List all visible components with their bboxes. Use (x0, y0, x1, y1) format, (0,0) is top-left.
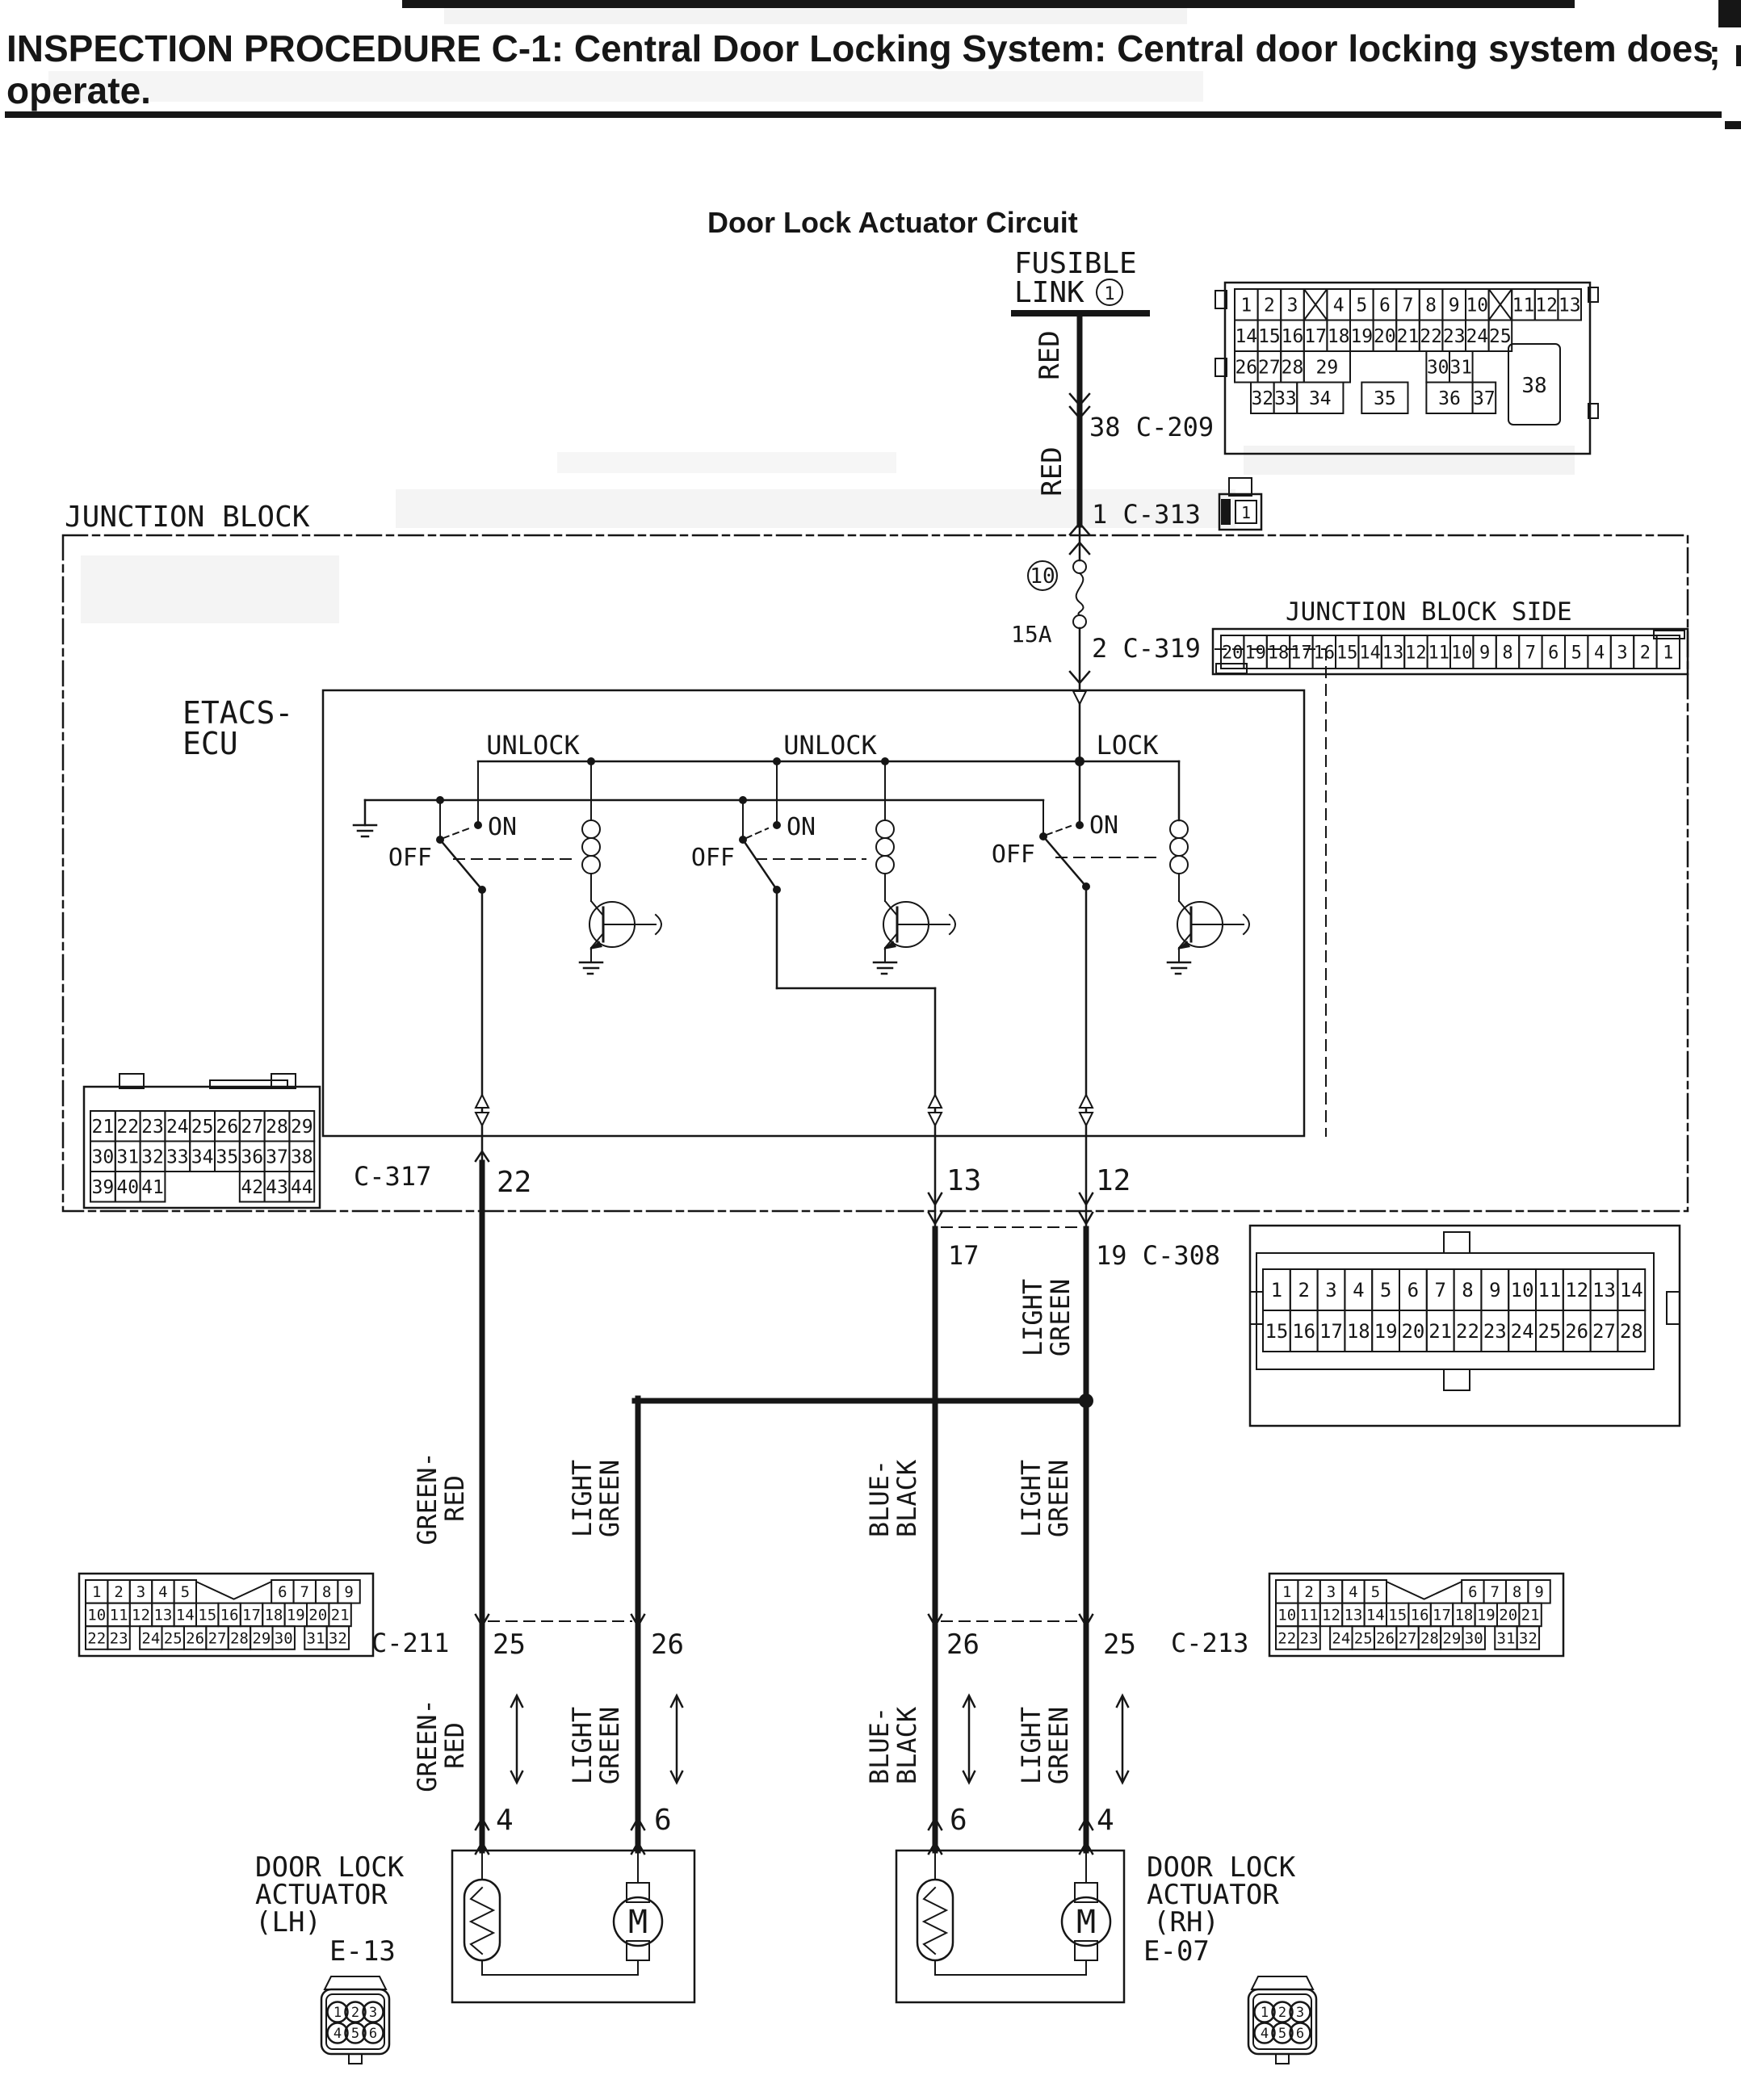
switch-blade (743, 840, 777, 890)
wire-color-light-green: LIGHT GREEN (567, 1460, 625, 1537)
wire-color-label: LIGHT (1016, 1460, 1047, 1537)
junction-dot (436, 796, 444, 804)
pin-number: 16 (1282, 326, 1304, 347)
pin-number: 11 (1512, 296, 1535, 316)
pin-number: 12 (1405, 643, 1427, 663)
pin-number: 25 (164, 1629, 182, 1647)
pin-number: 13 (1382, 643, 1404, 663)
entry-triangle-icon (1073, 691, 1086, 704)
pin-number: 32 (1519, 1629, 1538, 1647)
pin-number: 33 (1274, 388, 1297, 409)
exit-triangles (476, 1095, 1093, 1125)
relay-coil-transistor-3 (1168, 761, 1249, 974)
pin-number: 19 (1244, 643, 1266, 663)
pin-number: 19 (1350, 326, 1373, 347)
blade-dashed (443, 828, 469, 838)
wire-color-label: BLUE- (864, 1707, 895, 1784)
connector-notch (196, 1582, 271, 1599)
c211-connector: 1234567891011121314151617181920212223242… (79, 1574, 373, 1656)
pin-number: 32 (329, 1629, 347, 1647)
blade-dashed (1047, 826, 1071, 835)
pin-number: 21 (331, 1607, 350, 1624)
pin-number: 8 (1425, 296, 1437, 316)
junction-dot (739, 796, 747, 804)
pin-number: 3 (369, 2005, 377, 2021)
etacs-label-line2: ECU (182, 726, 238, 761)
pin-number: 29 (1316, 358, 1339, 379)
pin-number: 10 (87, 1607, 106, 1624)
wire-color-label: BLACK (891, 1459, 922, 1537)
pin-number: 19 (1477, 1607, 1496, 1624)
pin-number: 27 (241, 1117, 263, 1138)
pin-number: 5 (1380, 1279, 1391, 1301)
base-hook (950, 915, 955, 934)
wire-color-label: RED (1034, 330, 1066, 379)
pin-number: 37 (1473, 388, 1496, 409)
on-contact (474, 821, 482, 829)
relay-switch-unlock-2: ON OFF (691, 757, 866, 894)
pin-number: 6 (1468, 1583, 1477, 1601)
pin-number: 17 (1319, 1320, 1343, 1343)
e07-round-connector: 123456 (1248, 1976, 1316, 2064)
pin-number: 8 (322, 1583, 331, 1601)
wire-color-label: RED (439, 1475, 470, 1522)
exit-triangle-icon (1080, 1113, 1093, 1125)
wire-color-label: GREEN (1045, 1279, 1076, 1356)
on-label: ON (1089, 811, 1118, 840)
pin-number: 18 (1268, 643, 1290, 663)
pin-number: 27 (1399, 1629, 1417, 1647)
actuator-pin-4-right: 4 (1097, 1804, 1114, 1837)
pin-number: 40 (116, 1177, 139, 1198)
pin-number: 5 (1371, 1583, 1380, 1601)
relay-switch-lock: ON OFF (992, 757, 1160, 891)
pin-number: 9 (344, 1583, 353, 1601)
pin-number: 15 (1336, 643, 1358, 663)
pin-number: 23 (141, 1117, 164, 1138)
pin-number: 36 (241, 1147, 263, 1168)
on-contact (1076, 821, 1084, 829)
pin-number: 5 (351, 2026, 359, 2042)
pin-number: 17 (1304, 326, 1327, 347)
page-edge-mark (1736, 45, 1741, 66)
c317-connector: 2122232425262728293031323334353637383940… (84, 1074, 320, 1208)
pin-number: 2 (1298, 1279, 1309, 1301)
pin-number: 22 (1456, 1320, 1479, 1343)
pin-number: 27 (1258, 358, 1281, 379)
junction-block-box (63, 535, 1688, 1211)
wire-color-label: LIGHT (1017, 1279, 1048, 1356)
pin-number: 32 (141, 1147, 164, 1168)
pin-number: 1 (334, 2005, 342, 2021)
exit-triangle-icon (1080, 1095, 1093, 1108)
pin-number: 10 (1277, 1607, 1296, 1624)
wire-color-light-green-2-lower: LIGHT GREEN (1016, 1707, 1074, 1784)
pin-number: 28 (1420, 1629, 1439, 1647)
actuator-pin-6-right: 6 (950, 1804, 967, 1837)
e07-housing-top (1252, 1976, 1313, 1989)
pin-number: 6 (1407, 1279, 1419, 1301)
wire-color-label: BLACK (891, 1706, 922, 1784)
pin-number: 26 (216, 1117, 239, 1138)
blade-dashed (746, 828, 768, 838)
pin-number: 1 (1240, 296, 1252, 316)
pin-19-c308-label: 19 C-308 (1096, 1240, 1220, 1271)
pin-number: 16 (1292, 1320, 1315, 1343)
pin-number: 12 (1535, 296, 1558, 316)
pin-number: 8 (1462, 1279, 1473, 1301)
e13-round-connector: 123456 (321, 1976, 389, 2064)
e07-pin-grid: 123456 (1255, 2002, 1311, 2043)
pin-number: 39 (92, 1177, 115, 1198)
pin-number: 1 (1271, 1279, 1282, 1301)
coil-turn (1170, 856, 1188, 874)
pin-number: 15 (1388, 1607, 1407, 1624)
pin-number: 20 (1499, 1607, 1517, 1624)
c211-pin-grid: 1234567891011121314151617181920212223242… (86, 1580, 360, 1649)
pin-number: 1 (1282, 1583, 1291, 1601)
door-lock-wiring-diagram: INSPECTION PROCEDURE C-1: Central Door L… (0, 0, 1741, 2100)
pin-number: 28 (1620, 1320, 1643, 1343)
wire-color-label: GREEN- (412, 1452, 443, 1545)
pin-number: 3 (136, 1583, 145, 1601)
pin-number: 20 (1401, 1320, 1424, 1343)
off-label: OFF (388, 844, 432, 872)
top-rule (402, 0, 1575, 8)
fusible-link-label-line1: FUSIBLE (1014, 247, 1137, 280)
pin-number: 18 (1328, 326, 1350, 347)
fusible-link-label-line2: LINK (1014, 276, 1084, 309)
pin-number: 23 (110, 1629, 128, 1647)
circuit-heading: Door Lock Actuator Circuit (707, 206, 1078, 239)
pin-number: 25 (1489, 326, 1512, 347)
pin-number: 31 (116, 1147, 139, 1168)
pin-number: 14 (1359, 643, 1381, 663)
pin-number: 24 (166, 1117, 189, 1138)
pin-number: 18 (1454, 1607, 1473, 1624)
pin-number: 29 (252, 1629, 271, 1647)
pin-number: 7 (1525, 643, 1536, 663)
pin-number: 11 (1428, 643, 1450, 663)
fuse-rating: 15A (1011, 621, 1052, 648)
pin-number: 6 (369, 2026, 377, 2042)
pin-number: 30 (92, 1147, 115, 1168)
etacs-ecu: ETACS- ECU (182, 649, 1326, 1136)
lh-actuator-box (452, 1851, 694, 2002)
pin-number: 6 (1379, 296, 1391, 316)
pin-number: 24 (141, 1629, 160, 1647)
pin-number: 13 (153, 1607, 172, 1624)
pin-number: 2 (1304, 1583, 1313, 1601)
base-hook (1244, 915, 1249, 934)
pin-number: 28 (1282, 358, 1304, 379)
pin-number: 5 (1278, 2026, 1286, 2042)
pin-number: 38 (291, 1147, 313, 1168)
pin-number: 29 (1442, 1629, 1461, 1647)
pin-number: 7 (1491, 1583, 1500, 1601)
wire-color-blue-black: BLUE- BLACK (864, 1459, 922, 1537)
pin-number: 22 (1420, 326, 1442, 347)
base-hook (656, 915, 661, 934)
pin-number: 2 (1278, 2005, 1286, 2021)
pin-number: 2 (1264, 296, 1275, 316)
wire-color-light-green-lower: LIGHT GREEN (567, 1707, 625, 1784)
exit-triangle-icon (476, 1095, 489, 1108)
pin-number: 5 (1356, 296, 1367, 316)
pin-number: 18 (264, 1607, 283, 1624)
switch-blade (1043, 836, 1086, 887)
pin-number: 42 (241, 1177, 263, 1198)
wire-color-label: RED (1036, 446, 1068, 496)
pin-number: 17 (1433, 1607, 1451, 1624)
c308-connector: 1234567891011121314151617181920212223242… (1250, 1226, 1680, 1426)
pin-number: 6 (1548, 643, 1559, 663)
relay-coil-transistor-1 (580, 757, 661, 974)
pin-number: 22 (1277, 1629, 1296, 1647)
pin-number: 14 (1366, 1607, 1385, 1624)
wiring-diagram-page: INSPECTION PROCEDURE C-1: Central Door L… (0, 0, 1741, 2100)
pin-number: 44 (291, 1177, 313, 1198)
unlock-label-1: UNLOCK (486, 730, 580, 761)
pin-13-label: 13 (946, 1164, 981, 1197)
lock-switch-capsule (464, 1880, 500, 1960)
exit-triangle-icon (476, 1113, 489, 1125)
resistor-zigzag (924, 1888, 946, 1954)
lh-actuator-label-line3: (LH) (255, 1906, 321, 1939)
pin-number: 33 (166, 1147, 189, 1168)
pin-number: 1 (1261, 2005, 1269, 2021)
pin-number: 35 (1374, 388, 1396, 409)
wire-color-label: LIGHT (567, 1707, 598, 1784)
scan-artifact (1244, 446, 1575, 475)
pin-number: 3 (1325, 1279, 1336, 1301)
junction-block-label: JUNCTION BLOCK (65, 501, 310, 534)
pin-number: 15 (198, 1607, 216, 1624)
c308-pin-grid: 1234567891011121314151617181920212223242… (1263, 1269, 1645, 1352)
actuator-pin-6-left: 6 (654, 1804, 672, 1837)
fuse-element (1076, 573, 1084, 615)
pin-number: 20 (1374, 326, 1396, 347)
pin-number: 13 (1592, 1279, 1616, 1301)
pin-number: 16 (1314, 643, 1336, 663)
pin-number: 34 (191, 1147, 214, 1168)
connector-ref-c313: 1 C-313 (1092, 499, 1201, 530)
pin-number: 30 (275, 1629, 293, 1647)
pin-number: 18 (1347, 1320, 1370, 1343)
pin-number: 1 (92, 1583, 101, 1601)
pin-number: 5 (1571, 643, 1582, 663)
pin-number: 4 (334, 2026, 342, 2042)
pin-number: 10 (1466, 296, 1488, 316)
pin-number: 3 (1617, 643, 1627, 663)
pin-number: 4 (1333, 296, 1345, 316)
e13-tab (349, 2054, 362, 2064)
pin-number: 36 (1438, 388, 1461, 409)
pin-number: 12 (1565, 1279, 1588, 1301)
switch-blade (440, 840, 482, 890)
pin-25-right: 25 (1103, 1628, 1136, 1661)
wire-color-label: GREEN (594, 1707, 625, 1784)
pin-number: 9 (1489, 1279, 1500, 1301)
pin-number: 17 (242, 1607, 261, 1624)
pin-number: 22 (116, 1117, 139, 1138)
pin-number: 2 (351, 2005, 359, 2021)
jb-side-pin-grid: 2019181716151413121110987654321 (1221, 635, 1680, 669)
pin-number: 19 (287, 1607, 305, 1624)
pin-number: 25 (1354, 1629, 1373, 1647)
pin-number: 7 (1434, 1279, 1445, 1301)
pin-number: 14 (1235, 326, 1257, 347)
pin-number: 16 (1411, 1607, 1429, 1624)
junction-block-side-label: JUNCTION BLOCK SIDE (1286, 597, 1572, 627)
relay-circuits: UNLOCK UNLOCK LOCK ON OFF (354, 730, 1249, 974)
pin-12-label: 12 (1096, 1164, 1131, 1197)
pin-number: 8 (1512, 1583, 1521, 1601)
page-title-edge-fragment: ; (1709, 33, 1721, 73)
pin-number: 26 (1235, 358, 1257, 379)
scan-artifact (444, 6, 1187, 24)
fuse-terminal (1073, 615, 1086, 628)
pin-number: 27 (1592, 1320, 1616, 1343)
pin-number: 41 (141, 1177, 164, 1198)
c213-pin-grid: 1234567891011121314151617181920212223242… (1276, 1580, 1550, 1649)
rh-actuator-label-line3: (RH) (1153, 1906, 1219, 1939)
e07-tab (1276, 2054, 1289, 2064)
pin-number: 26 (186, 1629, 204, 1647)
connector-ref-c213: C-213 (1171, 1628, 1248, 1658)
wire-color-label: GREEN (1043, 1460, 1074, 1537)
pin-number: 2 (114, 1583, 123, 1601)
fuse-number: 10 (1030, 564, 1055, 589)
pin-number: 43 (266, 1177, 288, 1198)
pin-number: 4 (1594, 643, 1605, 663)
pin-number: 28 (230, 1629, 249, 1647)
exit-triangle-icon (929, 1113, 942, 1125)
on-label: ON (787, 813, 816, 841)
pin-number: 34 (1309, 388, 1332, 409)
connector-ref-c211: C-211 (371, 1628, 449, 1658)
pin-number: 13 (1344, 1607, 1362, 1624)
page-title-line1: INSPECTION PROCEDURE C-1: Central Door L… (6, 27, 1714, 69)
pin-number: 24 (1332, 1629, 1350, 1647)
pin-number: 21 (1521, 1607, 1540, 1624)
e13-housing-top (325, 1976, 386, 1989)
lh-connector-ref-e13: E-13 (329, 1935, 396, 1968)
pin-25-left: 25 (493, 1628, 526, 1661)
pin-number: 37 (266, 1147, 288, 1168)
pin-number: 16 (220, 1607, 239, 1624)
pin-number: 32 (1251, 388, 1273, 409)
pin-number: 9 (1479, 643, 1490, 663)
pin-number: 35 (216, 1147, 239, 1168)
internal-wire (482, 1960, 638, 1975)
pin-number: 31 (307, 1629, 325, 1647)
pin-number: 11 (1300, 1607, 1319, 1624)
pin-17-label: 17 (948, 1240, 980, 1271)
pin-number: 11 (1538, 1279, 1561, 1301)
pin-22-label: 22 (497, 1166, 531, 1199)
ground-icon (354, 825, 376, 836)
connector-notch (1387, 1582, 1462, 1599)
pin-number: 15 (1258, 326, 1281, 347)
rh-connector-ref-e07: E-07 (1143, 1935, 1210, 1968)
pin-number: 2 (1640, 643, 1651, 663)
lock-switch-capsule (917, 1880, 953, 1960)
on-contact (773, 821, 781, 829)
c317-pin-grid: 2122232425262728293031323334353637383940… (90, 1111, 314, 1202)
pin-number: 6 (1296, 2026, 1304, 2042)
page-edge-mark (1718, 0, 1741, 27)
pin-number: 30 (1427, 358, 1449, 379)
coil-turn (876, 856, 894, 874)
connector-ref-c319: 2 C-319 (1092, 633, 1201, 664)
c308-tab (1444, 1369, 1470, 1390)
pin-number: 10 (1451, 643, 1473, 663)
pin-number: 7 (300, 1583, 309, 1601)
c313-icon-key (1221, 499, 1231, 525)
pin-number: 6 (278, 1583, 287, 1601)
pin-number: 25 (191, 1117, 214, 1138)
pin-number: 23 (1483, 1320, 1507, 1343)
motor-letter: M (1076, 1904, 1096, 1941)
wire-color-red-2: RED (1036, 446, 1068, 496)
wire-color-label: GREEN (1043, 1707, 1074, 1784)
on-label: ON (488, 813, 517, 841)
connector-ref-c317: C-317 (354, 1161, 431, 1192)
coil-turn (582, 820, 600, 838)
pin-number: 15 (1265, 1320, 1288, 1343)
coil-turn (1170, 820, 1188, 838)
pin-number: 20 (308, 1607, 327, 1624)
pin-number: 28 (266, 1117, 288, 1138)
scan-artifact (81, 555, 339, 623)
pin-number: 24 (1466, 326, 1488, 347)
wire-color-label: RED (439, 1722, 470, 1769)
c209-big-cell-number: 38 (1521, 374, 1546, 398)
jb-side-connector: JUNCTION BLOCK SIDE 20191817161514131211… (1213, 597, 1688, 674)
c313-connector-icon: 1 (1219, 478, 1261, 530)
pin-number: 4 (1353, 1279, 1364, 1301)
relay-coil-transistor-2 (874, 757, 955, 974)
c308-clip (1667, 1292, 1680, 1324)
pin-number: 12 (1322, 1607, 1340, 1624)
coil-turn (876, 820, 894, 838)
pin-number: 1 (1663, 643, 1673, 663)
page-title-line2: operate. (6, 69, 151, 111)
exit-triangle-icon (929, 1095, 942, 1108)
pin-number: 4 (1349, 1583, 1357, 1601)
pin-number: 3 (1296, 2005, 1304, 2021)
pin-number: 4 (1261, 2026, 1269, 2042)
pin-number: 22 (87, 1629, 106, 1647)
off-label: OFF (691, 844, 735, 872)
junction-dot (1079, 1394, 1093, 1408)
actuator-entry-chevrons (476, 1818, 1093, 1854)
e13-pin-grid: 123456 (328, 2002, 384, 2043)
scan-artifact (557, 452, 896, 473)
rh-door-lock-actuator: M DOOR LOCK ACTUATOR (RH) E-07 123456 (896, 1851, 1316, 2064)
pin-number: 26 (1376, 1629, 1395, 1647)
pin-number: 17 (1290, 643, 1312, 663)
actuator-pin-4-left: 4 (496, 1804, 514, 1837)
pin-number: 9 (1449, 296, 1460, 316)
pin-number: 19 (1374, 1320, 1398, 1343)
pin-number: 21 (92, 1117, 115, 1138)
coil-turn (582, 838, 600, 856)
wire-color-green-red: GREEN- RED (412, 1452, 470, 1545)
pin-number: 3 (1287, 296, 1298, 316)
wire-color-label: BLUE- (864, 1460, 895, 1537)
